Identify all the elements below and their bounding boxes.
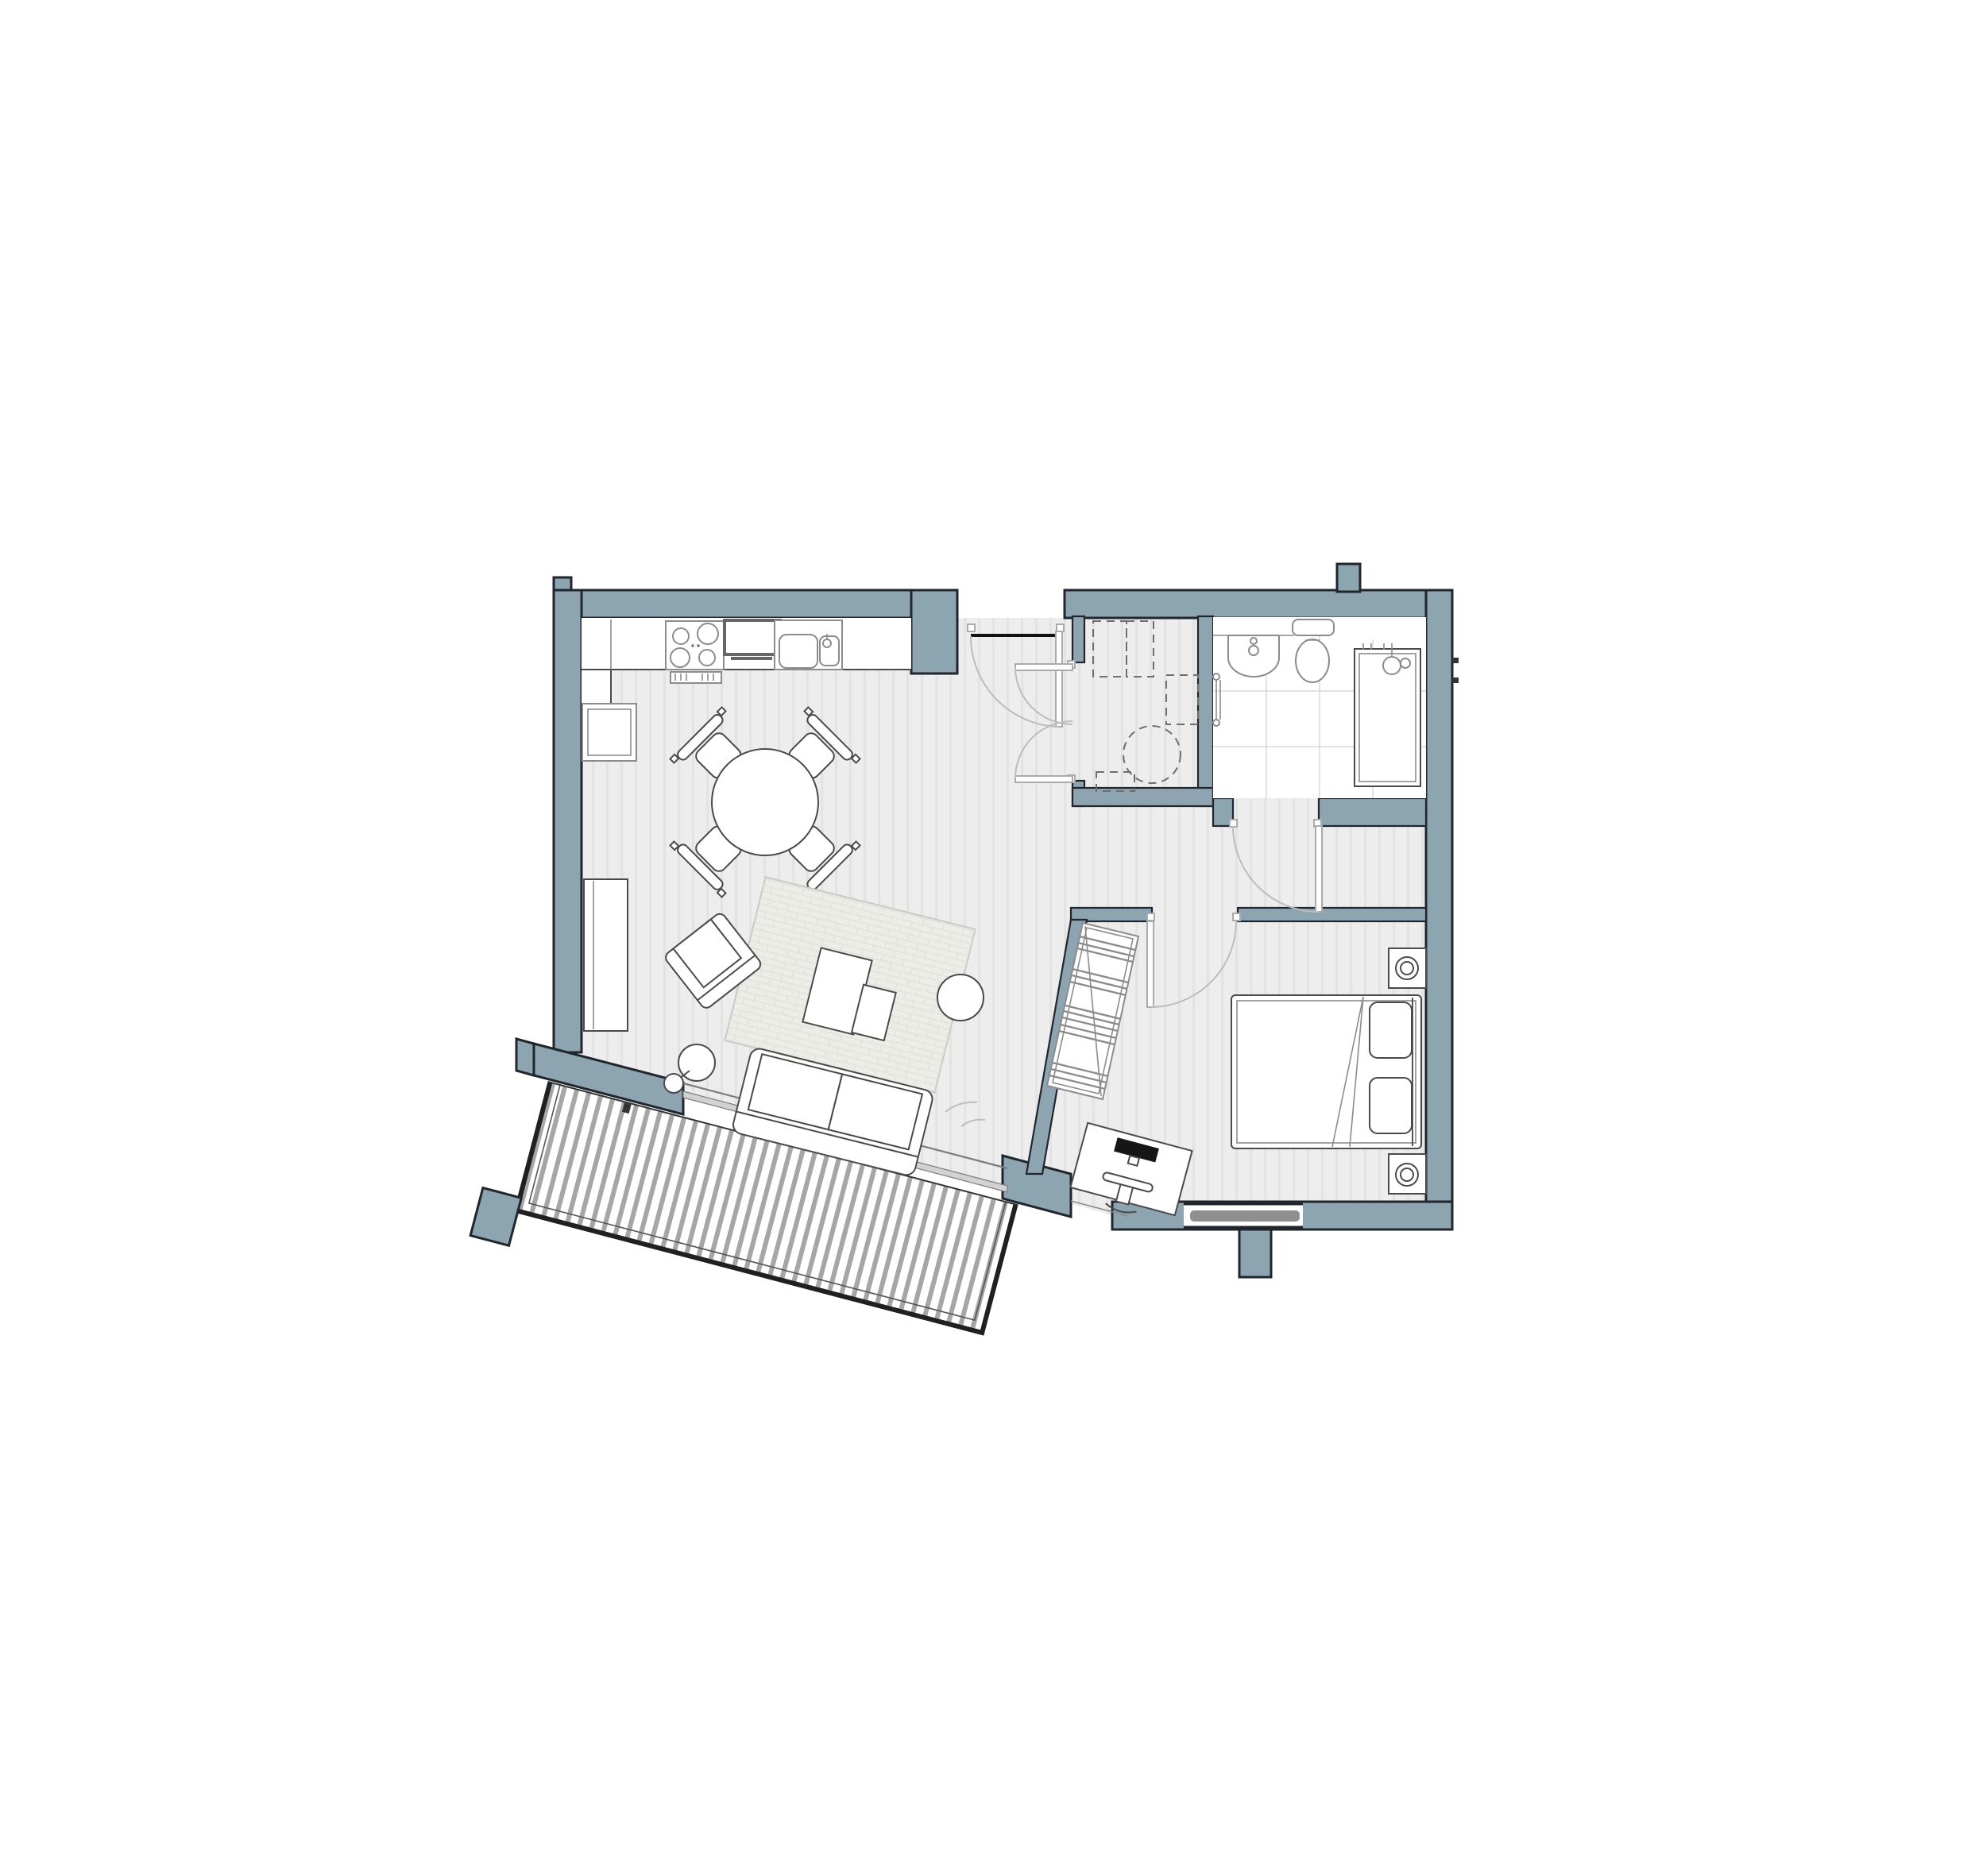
window-radiator xyxy=(1190,1210,1300,1222)
kitchen-oven xyxy=(725,620,780,658)
pillow xyxy=(1370,1078,1412,1133)
wall-tick xyxy=(1452,658,1459,663)
entrance-door-leaf xyxy=(1056,631,1062,727)
shower-head xyxy=(1383,657,1401,674)
kitchen-sink xyxy=(775,620,842,670)
wall-tab-topright xyxy=(1337,564,1360,592)
wall-top-kitchen xyxy=(554,590,911,618)
closet-door-leaf-top xyxy=(1015,664,1072,670)
bathroom-basin xyxy=(1228,635,1279,677)
kitchen-counter-left xyxy=(582,618,611,704)
kitchen-cooktop xyxy=(666,621,724,683)
bedroom-window xyxy=(1184,1204,1303,1227)
closet-wall-bottom xyxy=(1072,788,1213,806)
media-unit xyxy=(584,879,628,1031)
wall-tick xyxy=(1452,677,1459,683)
closet-door-leaf-bottom xyxy=(1015,776,1072,782)
bathroom xyxy=(1213,617,1426,798)
wall-pier-hall xyxy=(911,590,957,674)
kitchen-tall-unit-fridge xyxy=(582,704,636,761)
bedside-table-bottom xyxy=(1389,1154,1426,1194)
wall-step-bottom xyxy=(1239,1229,1271,1277)
double-bed xyxy=(1231,995,1421,1148)
wall-left xyxy=(554,590,582,1052)
bedroom-door-leaf xyxy=(1147,921,1154,1007)
closet-wall-left-top xyxy=(1072,616,1084,662)
bedside-table-top xyxy=(1389,948,1426,988)
floor-plan-page xyxy=(0,0,1971,1876)
dining-table xyxy=(712,749,818,855)
floor-plan-drawing xyxy=(0,0,1971,1876)
bedroom-wall-top-right xyxy=(1238,908,1426,921)
bathroom-wall-bottom-right xyxy=(1319,798,1426,826)
shower-enclosure xyxy=(1355,643,1420,786)
bathroom-door-leaf xyxy=(1316,826,1322,912)
pillow xyxy=(1370,1002,1412,1058)
balcony-pier-wall xyxy=(470,1188,521,1246)
round-side-table xyxy=(937,975,984,1021)
closet-wall-right xyxy=(1198,616,1213,806)
wall-step-left xyxy=(516,1039,534,1075)
sink-tap xyxy=(823,639,831,647)
cooktop-control-strip xyxy=(671,672,721,683)
wall-top-right xyxy=(1065,590,1452,618)
wall-right xyxy=(1426,590,1452,1229)
